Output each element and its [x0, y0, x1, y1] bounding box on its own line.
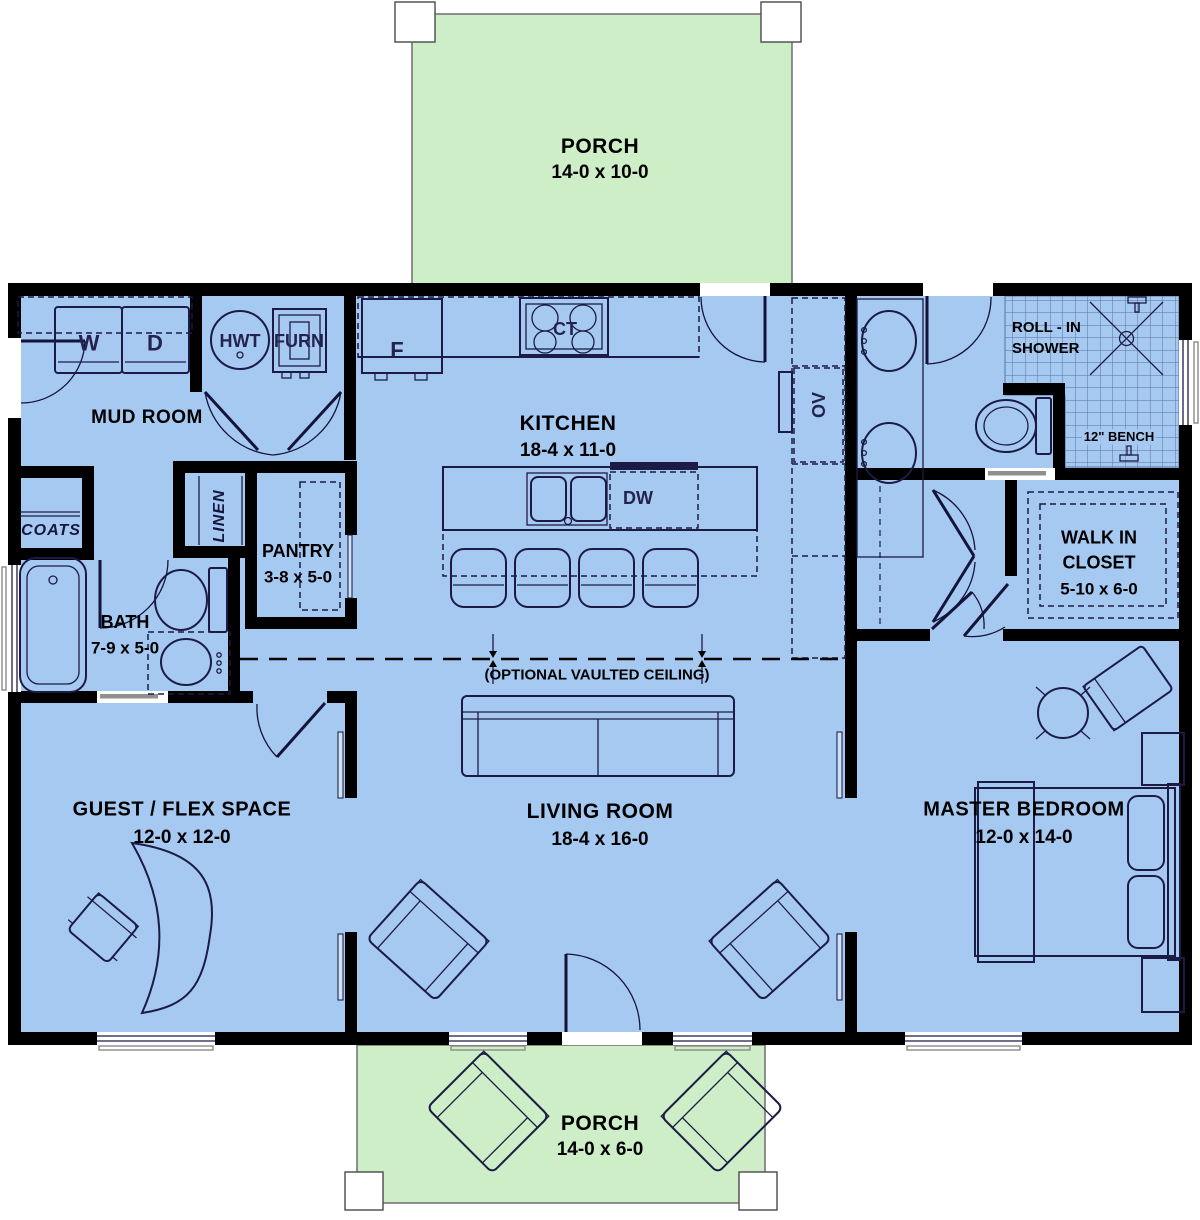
living-room-dims: 18-4 x 16-0: [551, 828, 648, 852]
shower-label-line1: ROLL - IN: [1012, 318, 1081, 338]
coats-label: COATS: [21, 521, 81, 541]
water-heater-label: HWT: [220, 330, 261, 353]
furnace-label: FURN: [274, 330, 324, 353]
porch-post: [345, 1172, 383, 1210]
master-window: [905, 1032, 1022, 1050]
bath-label: BATH: [101, 611, 150, 634]
linen-label: LINEN: [210, 490, 230, 543]
master-dims: 12-0 x 14-0: [975, 826, 1072, 850]
kitchen-dims: 18-4 x 11-0: [520, 439, 616, 463]
porch-post: [739, 1172, 777, 1210]
porch-post: [395, 2, 435, 42]
walk-in-closet-line2: CLOSET: [1062, 550, 1135, 575]
oven-label: OV: [808, 392, 831, 418]
bath-window: [2, 565, 21, 692]
bench-label: 12" BENCH: [1082, 429, 1156, 445]
pantry-label: PANTRY: [262, 540, 334, 563]
house-floor: [8, 283, 1192, 1045]
mud-room-label: MUD ROOM: [91, 406, 203, 430]
guest-label: GUEST / FLEX SPACE: [73, 798, 292, 823]
bath-pocket-door: [97, 691, 168, 703]
guest-window: [97, 1032, 215, 1050]
bath-dims: 7-9 x 5-0: [91, 637, 159, 658]
dishwasher-edge: [610, 462, 698, 470]
kitchen-label: KITCHEN: [520, 411, 617, 437]
walk-in-closet-line1: WALK IN: [1061, 525, 1137, 550]
porch-bottom-label: PORCH: [561, 1111, 639, 1137]
master-bath-pocket-door: [985, 468, 1055, 480]
pantry-dims: 3-8 x 5-0: [264, 566, 332, 587]
pantry-door: [348, 535, 352, 598]
fridge-label: F: [390, 336, 403, 364]
porch-bottom-dims: 14-0 x 6-0: [557, 1138, 644, 1162]
vaulted-ceiling-note: (OPTIONAL VAULTED CEILING): [485, 667, 710, 686]
master-label: MASTER BEDROOM: [923, 798, 1124, 823]
porch-top-dims: 14-0 x 10-0: [551, 161, 648, 185]
porch-top-label: PORCH: [561, 134, 639, 160]
dryer-label: D: [147, 329, 163, 357]
shower-label-line2: SHOWER: [1012, 339, 1080, 359]
washer-label: W: [79, 329, 100, 357]
walk-in-closet-dims: 5-10 x 6-0: [1060, 578, 1138, 599]
porch-post: [761, 2, 801, 42]
shower-window: [1179, 340, 1198, 425]
living-room-label: LIVING ROOM: [527, 799, 674, 825]
dishwasher-label: DW: [623, 487, 653, 510]
floor-plan: PORCH 14-0 x 10-0 MUD ROOM KITCHEN 18-4 …: [0, 0, 1200, 1220]
guest-dims: 12-0 x 12-0: [133, 826, 230, 850]
cooktop-label: CT: [553, 318, 577, 341]
